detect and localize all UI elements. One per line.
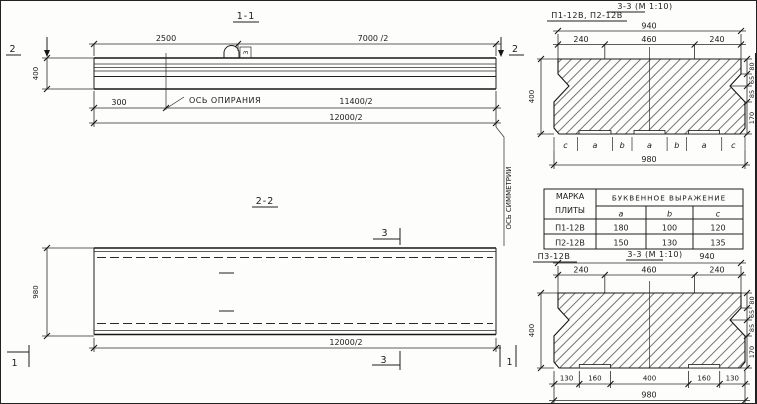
section-1-1-title: 1-1 (237, 11, 256, 22)
section-2-2-title: 2-2 (256, 196, 275, 207)
cut-marker-2-right: 2 (498, 37, 524, 57)
s33-bottom-body (554, 281, 745, 368)
dim-170: 170 (748, 112, 756, 124)
marker-1-right-label: 1 (506, 357, 513, 368)
bottom-groove (634, 131, 665, 135)
bottom-groove (579, 131, 611, 135)
dim-130-b: 130 (726, 375, 739, 383)
dim-940-bottom: 940 (699, 252, 714, 261)
dim-300: 300 (111, 98, 126, 107)
row2-b: 130 (662, 239, 677, 248)
table-subheader-b: b (667, 210, 672, 219)
s33-top-title: 3-3 (М 1:10) (617, 2, 672, 11)
letter-b2: b (674, 141, 679, 150)
letter-a1: a (593, 141, 598, 150)
dim-240-c: 240 (573, 266, 588, 275)
marker-3-bottom-label: 3 (380, 355, 387, 366)
s33-top-letters-row: c a b a b a c (554, 137, 745, 151)
row1-a: 180 (613, 224, 628, 233)
dim-width-2-2: 980 (32, 245, 94, 339)
cut-marker-1-right: 1 (500, 345, 516, 368)
marker-2-left-label: 2 (9, 44, 16, 55)
dim-7000-2: 7000 /2 (358, 34, 389, 43)
support-axis-label: ОСЬ ОПИРАНИЯ (189, 96, 261, 105)
row1-mark: П1-12В (555, 224, 585, 233)
marker-3-top-label: 3 (381, 228, 388, 239)
dim-240-b: 240 (709, 35, 724, 44)
dim-80: 80 (748, 62, 756, 70)
s33-bottom-dim-total: 980 (549, 388, 750, 404)
drawing-sheet: 1-1 3 2500 7000 /2 2 (0, 0, 757, 404)
dim-65: 65 (748, 76, 756, 84)
cut-marker-2-left: 2 (6, 37, 50, 57)
table-row: П1-12В 180 100 120 (555, 224, 725, 233)
dim-400-top-section: 400 (528, 90, 536, 103)
dim-80-b: 80 (748, 296, 756, 304)
dim-160-b: 160 (697, 375, 710, 383)
bottom-groove (689, 131, 720, 135)
letter-a2: a (647, 141, 652, 150)
cut-marker-3-bottom: 3 (372, 351, 400, 370)
dim-top-1-1: 2500 7000 /2 (89, 34, 501, 56)
table-subheader-a: a (619, 210, 624, 219)
marker-1-left-label: 1 (11, 358, 18, 369)
dim-980-bottom-section: 980 (641, 391, 656, 400)
s33-top-body (554, 47, 745, 134)
table-row: П2-12В 150 130 135 (555, 239, 725, 248)
s33-bottom-title: 3-3 (М 1:10) (627, 250, 682, 259)
dim-240-a: 240 (573, 35, 588, 44)
dim-12000-2: 12000/2 (329, 113, 362, 122)
letter-c1: c (563, 141, 568, 150)
dim-65-b: 65 (748, 310, 756, 318)
marker-2-right-label: 2 (512, 44, 519, 55)
dim-460-b: 460 (641, 266, 656, 275)
table-col2-header: БУКВЕННОЕ ВЫРАЖЕНИЕ (612, 194, 726, 203)
row2-mark: П2-12В (555, 239, 585, 248)
loop-tag-label: 3 (242, 50, 250, 54)
table-subheader-c: c (716, 210, 721, 219)
dim-2500: 2500 (156, 34, 176, 43)
dim-980-top-section: 980 (641, 155, 656, 164)
dim-160-a: 160 (588, 375, 601, 383)
letter-c2: c (731, 141, 736, 150)
cut-marker-3-top: 3 (373, 228, 400, 245)
letter-a3: a (702, 141, 707, 150)
cross-section-p3: П3-12В 3-3 (М 1:10) 940 240 460 240 80 6… (528, 250, 756, 404)
view-1-1: 1-1 3 2500 7000 /2 2 (6, 11, 524, 127)
dim-240-d: 240 (709, 266, 724, 275)
dim-940-top: 940 (641, 22, 656, 31)
table-col1-line1: МАРКА (556, 192, 585, 201)
symmetry-axis-label: ОСЬ СИММЕТРИИ (505, 166, 513, 229)
dim-130-a: 130 (560, 375, 573, 383)
dim-400-bottom-section: 400 (528, 324, 536, 337)
table-col1-line2: ПЛИТЫ (555, 206, 585, 215)
dim-460-a: 460 (641, 35, 656, 44)
lifting-loop: 3 (224, 46, 251, 58)
dim-170-b: 170 (748, 346, 756, 358)
bottom-groove (689, 365, 720, 369)
slab-plan-outline (94, 248, 496, 335)
dim-length-2-2: 12000/2 (89, 338, 501, 352)
engineering-drawing: 1-1 3 2500 7000 /2 2 (1, 1, 757, 404)
slab-side-outline (94, 53, 496, 110)
dim-85: 85 (748, 90, 756, 98)
s33-top-dim-bottom: 980 (549, 151, 750, 169)
cross-section-p1-p2: П1-12В, П2-12В 3-3 (М 1:10) 940 240 460 … (528, 2, 756, 169)
dim-85-b: 85 (748, 324, 756, 332)
dim-980-plan: 980 (32, 285, 40, 298)
symmetry-axis: ОСЬ СИММЕТРИИ (496, 127, 513, 246)
p3-label: П3-12В (538, 252, 571, 261)
row1-b: 100 (662, 224, 677, 233)
letter-b1: b (620, 141, 625, 150)
row2-c: 135 (710, 239, 725, 248)
dim-12000-2-plan: 12000/2 (329, 338, 362, 347)
dim-11400-2: 11400/2 (339, 97, 372, 106)
dim-bottom-1-1: 300 ОСЬ ОПИРАНИЯ 11400/2 12000/2 (89, 91, 501, 127)
variables-table: МАРКА ПЛИТЫ БУКВЕННОЕ ВЫРАЖЕНИЕ a b c П1… (544, 189, 743, 249)
row1-c: 120 (710, 224, 725, 233)
dim-height-1-1: 400 (32, 55, 94, 92)
view-2-2: 2-2 3 980 12000/2 1 (7, 196, 516, 370)
dim-400-side: 400 (32, 67, 40, 80)
s33-bottom-dims-below: 130 160 400 160 130 (549, 371, 750, 388)
row2-a: 150 (613, 239, 628, 248)
bottom-groove (579, 365, 610, 369)
dim-400-b: 400 (643, 375, 656, 383)
cut-marker-1-left: 1 (7, 345, 29, 369)
